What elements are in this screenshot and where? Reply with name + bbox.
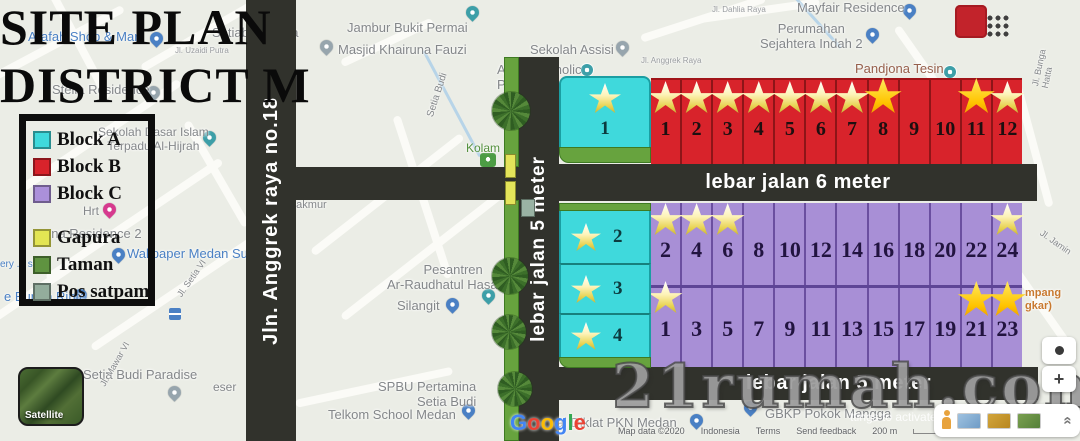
lot-5: 5: [775, 80, 806, 164]
lot-number: 7: [837, 118, 866, 141]
lot-number: 9: [900, 118, 929, 141]
lot-10: 10: [931, 80, 962, 164]
lot-12: 12: [806, 203, 837, 285]
lot-24: 24: [993, 203, 1022, 285]
map-dot-icon[interactable]: [581, 64, 593, 76]
map-label[interactable]: Pandjona Tesin: [855, 62, 944, 77]
star-icon: [711, 81, 745, 113]
palm-tree-icon: [492, 92, 530, 130]
google-logo-letter: G: [510, 410, 527, 435]
lot-number: 8: [744, 237, 773, 263]
google-logo-letter: o: [541, 410, 554, 435]
lot-number: 7: [744, 316, 773, 342]
star-icon: [958, 281, 995, 316]
lot-11: 11: [962, 80, 993, 164]
collapse-icon[interactable]: «: [1059, 416, 1076, 424]
lot-8: 8: [744, 203, 775, 285]
legend-label: Block A: [57, 129, 121, 151]
star-icon: [649, 281, 683, 313]
apps-grid-icon[interactable]: [986, 14, 1009, 37]
taman-strip: [559, 203, 651, 211]
lot-12: 12: [993, 80, 1022, 164]
lot-18: 18: [900, 203, 931, 285]
lot-number: 3: [713, 118, 742, 141]
lot-a4: 4: [559, 313, 651, 357]
star-icon: [742, 81, 776, 113]
lot-9: 9: [900, 80, 931, 164]
legend-label: Pos satpam: [57, 281, 149, 303]
legend-item: Pos satpam: [33, 278, 148, 305]
star-icon: [571, 322, 601, 350]
lot-1: 1: [651, 80, 682, 164]
map-pin-icon[interactable]: [463, 3, 481, 21]
lot-number: 2: [682, 118, 711, 141]
legend-color-swatch: [33, 283, 51, 301]
lot-number: 5: [775, 118, 804, 141]
lot-3: 3: [713, 80, 744, 164]
road-site-top: lebar jalan 6 meter: [559, 164, 1037, 201]
legend-item: Block C: [33, 180, 148, 207]
palm-tree-icon: [492, 315, 526, 349]
lot-7: 7: [837, 80, 868, 164]
star-icon: [804, 81, 838, 113]
map-thumbnail[interactable]: [1017, 413, 1041, 429]
attribution-item[interactable]: Map data ©2020: [618, 426, 685, 436]
map-label[interactable]: Kolam: [466, 142, 500, 156]
road-entry: [294, 167, 526, 200]
gapura-icon: [505, 181, 516, 205]
page-title-line1: SITE PLAN: [0, 2, 272, 52]
attribution-item[interactable]: Terms: [756, 426, 781, 436]
map-label[interactable]: SPBU Pertamina Setia Budi: [378, 380, 476, 410]
map-label: Jl. Bunga Hatta: [1030, 36, 1061, 89]
lot-10: 10: [775, 203, 806, 285]
map-dot-icon[interactable]: [944, 66, 956, 78]
lot-number: 15: [869, 316, 898, 342]
lot-number: 18: [900, 237, 929, 263]
road-width-label: lebar jalan 6 meter: [705, 171, 890, 194]
star-icon: [990, 203, 1024, 235]
lot-number: 1: [651, 118, 680, 141]
star-icon: [990, 81, 1024, 113]
map-label[interactable]: Mayfair Residence: [797, 1, 905, 16]
star-icon: [773, 81, 807, 113]
lot-number: 17: [900, 316, 929, 342]
legend-label: Block B: [57, 156, 121, 178]
satellite-label: Satellite: [25, 410, 63, 421]
satellite-toggle[interactable]: Satellite: [18, 367, 84, 426]
road-width-label: lebar jalan 5 meter: [528, 156, 550, 342]
lot-20: 20: [931, 203, 962, 285]
lot-8: 8: [869, 80, 900, 164]
lot-number: 9: [775, 316, 804, 342]
map-label[interactable]: eser: [213, 381, 236, 395]
lot-number: 21: [962, 316, 991, 342]
map-label[interactable]: Masjid Khairuna Fauzi: [338, 43, 467, 58]
star-icon: [958, 78, 995, 113]
attribution-item[interactable]: Indonesia: [701, 426, 740, 436]
google-logo-letter: g: [554, 410, 567, 435]
legend-item: Gapura: [33, 224, 148, 251]
legend-label: Gapura: [57, 227, 120, 249]
lot-number: 4: [613, 325, 623, 347]
lot-number: 20: [931, 237, 960, 263]
lot-6: 6: [806, 80, 837, 164]
map-thumbnail[interactable]: [987, 413, 1011, 429]
lot-4: 4: [682, 203, 713, 285]
lot-number: 10: [775, 237, 804, 263]
map-pin-icon[interactable]: [165, 383, 183, 401]
palm-tree-icon: [498, 372, 532, 406]
legend-color-swatch: [33, 256, 51, 274]
lot-a3: 3: [559, 263, 651, 313]
legend-items: Block ABlock BBlock CGapuraTamanPos satp…: [33, 126, 148, 305]
lot-number: 11: [962, 118, 991, 141]
map-layers-panel: «: [934, 404, 1080, 437]
attribution-item[interactable]: Send feedback: [796, 426, 856, 436]
lot-6: 6: [713, 203, 744, 285]
legend-item: Taman: [33, 251, 148, 278]
page-title-line2: DISTRICT M: [0, 60, 311, 110]
map-label: Jl. Dahlia Raya: [712, 5, 766, 14]
lot-number: 19: [931, 316, 960, 342]
legend-label: Taman: [57, 254, 113, 276]
star-icon: [865, 78, 902, 113]
pegman-icon[interactable]: [942, 417, 951, 429]
map-pin-icon[interactable]: [317, 37, 335, 55]
lot-number: 24: [993, 237, 1022, 263]
block-b-row: 123456789101112: [651, 78, 1022, 164]
map-transit-icon[interactable]: [169, 308, 181, 320]
map-label[interactable]: Silangit: [397, 299, 440, 314]
star-icon: [571, 223, 601, 251]
road-name-label: Jln. Anggrek raya no.18: [260, 97, 283, 345]
legend-item: Block A: [33, 126, 148, 153]
map-thumbnail[interactable]: [957, 413, 981, 429]
lot-number: 5: [713, 316, 742, 342]
red-marker: [955, 5, 987, 38]
lot-number: 23: [993, 316, 1022, 342]
block-c-even-row: 24681012141618202224: [651, 203, 1022, 285]
lot-number: 6: [806, 118, 835, 141]
lot-4: 4: [744, 80, 775, 164]
star-icon: [649, 203, 683, 235]
attribution-item[interactable]: 200 m: [872, 426, 897, 436]
map-label[interactable]: Sekolah Assisi: [530, 43, 614, 58]
lot-number: 22: [962, 237, 991, 263]
lot-number: 8: [869, 118, 898, 141]
map-pin-icon[interactable]: [443, 295, 461, 313]
lot-number: 1: [561, 118, 649, 140]
lot-number: 14: [837, 237, 866, 263]
google-logo-letter: o: [527, 410, 540, 435]
lot-number: 12: [993, 118, 1022, 141]
lot-number: 13: [837, 316, 866, 342]
map-label: Jl. Jamin: [1038, 228, 1073, 257]
star-icon: [589, 83, 621, 113]
legend-color-swatch: [33, 229, 51, 247]
lot-number: 10: [931, 118, 960, 141]
taman-strip: [559, 147, 651, 163]
legend-item: Block B: [33, 153, 148, 180]
star-icon: [571, 275, 601, 303]
legend-color-swatch: [33, 185, 51, 203]
map-label[interactable]: mpang gkar): [1025, 287, 1061, 312]
map-label: Jl. Anggrek Raya: [641, 56, 701, 65]
lot-number: 1: [651, 316, 680, 342]
legend-box: Block ABlock BBlock CGapuraTamanPos satp…: [19, 114, 155, 306]
lot-2: 2: [651, 203, 682, 285]
lot-number: 2: [651, 237, 680, 263]
my-location-button[interactable]: [1042, 337, 1076, 364]
star-icon: [711, 203, 745, 235]
lot-14: 14: [837, 203, 868, 285]
lot-16: 16: [869, 203, 900, 285]
lot-number: 11: [806, 316, 835, 342]
legend-label: Block C: [57, 183, 122, 205]
map-pin-icon[interactable]: [613, 38, 631, 56]
palm-tree-icon: [492, 258, 528, 294]
lot-a2: 2: [559, 211, 651, 263]
map-pin-icon[interactable]: [863, 25, 881, 43]
star-icon: [835, 81, 869, 113]
map-label[interactable]: Telkom School Medan: [328, 408, 456, 423]
map-label[interactable]: Jambur Bukit Permai: [347, 21, 468, 36]
zoom-in-button[interactable]: +: [1042, 366, 1076, 392]
map-attribution: Map data ©2020IndonesiaTermsSend feedbac…: [618, 426, 951, 436]
gapura-icon: [505, 154, 516, 178]
legend-color-swatch: [33, 131, 51, 149]
star-icon: [680, 81, 714, 113]
pos-satpam-icon: [521, 199, 535, 217]
star-icon: [649, 81, 683, 113]
site-plan-screenshot: Jambur Bukit PermaiSetiabudi VistaArafah…: [0, 0, 1080, 441]
lot-number: 2: [613, 226, 623, 248]
map-label: Jl. Setia VI: [175, 258, 208, 299]
lot-number: 12: [806, 237, 835, 263]
lot-2: 2: [682, 80, 713, 164]
lot-22: 22: [962, 203, 993, 285]
lot-number: 3: [682, 316, 711, 342]
legend-color-swatch: [33, 158, 51, 176]
lot-number: 6: [713, 237, 742, 263]
map-label[interactable]: Perumahan Sejahtera Indah 2: [760, 22, 863, 52]
lot-number: 4: [744, 118, 773, 141]
lot-a1: 1: [559, 76, 651, 147]
google-logo: Google: [510, 410, 586, 436]
lot-number: 16: [869, 237, 898, 263]
star-icon: [989, 281, 1026, 316]
google-logo-letter: e: [574, 410, 586, 435]
lot-number: 4: [682, 237, 711, 263]
star-icon: [680, 203, 714, 235]
lot-number: 3: [613, 278, 623, 300]
